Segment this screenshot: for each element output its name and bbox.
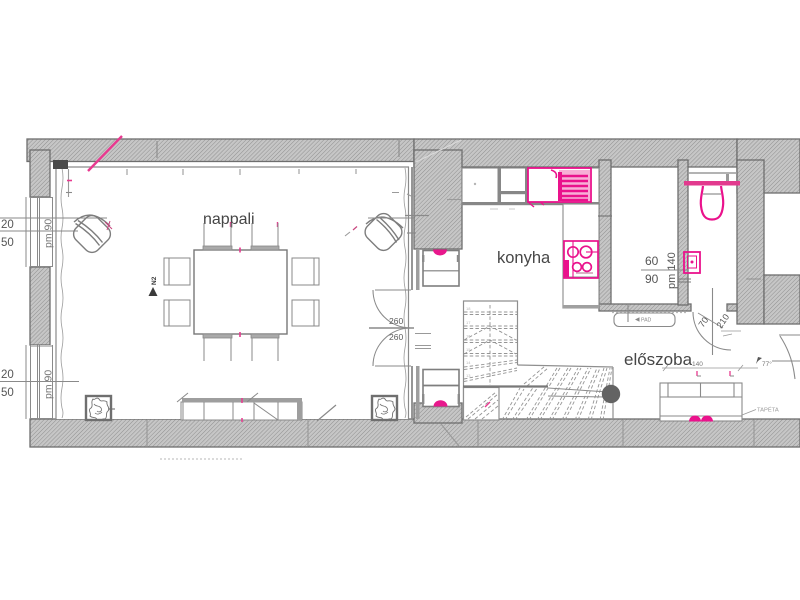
svg-text:13: 13: [466, 373, 471, 378]
svg-text:60: 60: [645, 254, 659, 268]
svg-text:pm 90: pm 90: [43, 219, 55, 248]
svg-text:50: 50: [1, 387, 14, 399]
svg-text:17: 17: [466, 320, 471, 325]
svg-text:16: 16: [466, 334, 471, 339]
svg-text:140: 140: [692, 361, 703, 368]
svg-text:TAPÉTA: TAPÉTA: [757, 407, 779, 414]
svg-text:20: 20: [1, 369, 14, 381]
svg-text:pm 140: pm 140: [666, 252, 678, 289]
svg-text:20: 20: [1, 219, 14, 231]
svg-text:előszoba: előszoba: [624, 350, 693, 369]
svg-text:18: 18: [466, 306, 471, 311]
svg-text:260: 260: [389, 332, 403, 342]
svg-text:pm 90: pm 90: [43, 370, 55, 399]
svg-text:77°: 77°: [762, 360, 772, 368]
svg-text:N2: N2: [151, 276, 158, 285]
svg-text:90: 90: [645, 272, 659, 286]
svg-text:260: 260: [389, 316, 403, 326]
svg-text:konyha: konyha: [497, 249, 551, 267]
svg-text:nappali: nappali: [203, 211, 255, 228]
svg-text:14: 14: [466, 360, 471, 365]
svg-text:PAD: PAD: [641, 318, 652, 324]
svg-text:15: 15: [466, 347, 471, 352]
svg-text:50: 50: [1, 237, 14, 249]
